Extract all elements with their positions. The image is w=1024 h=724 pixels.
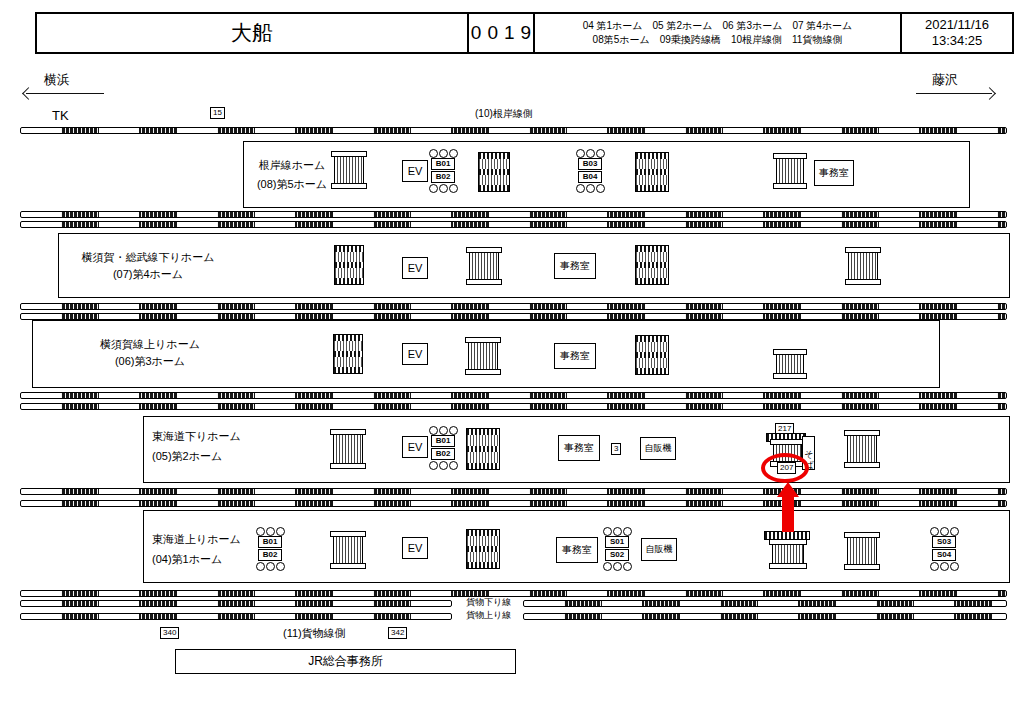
stairs-icon	[334, 156, 364, 184]
highlight-circle	[761, 453, 809, 483]
freight-up-track-left	[20, 613, 452, 620]
freight-side-label: (11)貨物線側	[283, 626, 346, 641]
platform-4-label: 横須賀・総武線下りホーム (07)第4ホーム	[78, 249, 218, 283]
track-line	[20, 403, 1007, 410]
direction-right-label: 藤沢	[932, 71, 958, 89]
direction-left-label: 横浜	[44, 71, 70, 89]
marker-15[interactable]: 15	[210, 107, 225, 119]
stairs-icon	[333, 536, 363, 564]
escalator-icon	[635, 152, 669, 192]
highlight-arrow-head-icon	[777, 482, 799, 497]
platform-3-label: 横須賀線上りホーム (06)第3ホーム	[86, 336, 214, 370]
platform-1-label: 東海道上りホーム (04)第1ホーム	[152, 529, 252, 569]
stairs-icon	[776, 158, 804, 184]
track-line	[20, 303, 1007, 310]
machine-dots-icon	[429, 426, 458, 434]
escalator-icon	[466, 529, 500, 569]
office-box: 事務室	[554, 343, 596, 369]
office-box: 事務室	[556, 537, 598, 563]
machine-dots-icon	[429, 184, 458, 192]
track-line	[20, 590, 1007, 597]
date-text: 2021/11/16	[925, 17, 989, 33]
screen-code: 0019	[467, 14, 533, 52]
machine-dots-icon	[603, 527, 632, 535]
negishi-side-label: (10)根岸線側	[475, 107, 533, 121]
escalator-icon	[635, 335, 669, 375]
machine-dots-icon	[930, 562, 959, 570]
direction-left-arrow-icon	[26, 93, 104, 94]
office-box: 事務室	[558, 435, 600, 461]
escalator-icon	[334, 245, 364, 285]
escalator-icon	[478, 152, 510, 192]
direction-right-arrow-icon	[916, 93, 992, 94]
stairs-icon	[469, 252, 499, 280]
track-line	[20, 127, 1007, 134]
vending-machine-box: 自販機	[641, 538, 677, 561]
freight-up-label: 貨物上り線	[466, 609, 511, 622]
legend-line-2: 08第5ホーム 09乗換跨線橋 10根岸線側 11貨物線側	[593, 33, 843, 47]
machine-dots-icon	[429, 149, 458, 157]
station-name: 大船	[37, 14, 467, 52]
elevator-box: EV	[402, 343, 428, 365]
stairs-icon	[847, 435, 877, 463]
escalator-icon	[333, 334, 363, 374]
stairs-icon	[468, 342, 498, 370]
machine-dots-icon	[930, 527, 959, 535]
freight-down-track-left	[20, 600, 452, 607]
highlight-arrow-shaft	[782, 496, 794, 532]
track-line	[20, 488, 1007, 495]
elevator-box: EV	[402, 537, 428, 559]
time-text: 13:34:25	[932, 33, 983, 49]
track-line	[20, 313, 1007, 320]
tk-label: TK	[52, 108, 69, 123]
signage-s01-s02[interactable]: S01 S02	[602, 527, 632, 570]
machine-dots-icon	[576, 184, 605, 192]
freight-down-track-right	[523, 600, 1007, 607]
elevator-box: EV	[402, 160, 428, 182]
platform-2-label: 東海道下りホーム (05)第2ホーム	[152, 426, 252, 466]
track-line	[20, 500, 1007, 507]
stairs-icon	[848, 252, 878, 280]
machine-dots-icon	[256, 562, 285, 570]
platform-5-label: 根岸線ホーム (08)第5ホーム	[246, 156, 338, 194]
stairs-icon	[847, 537, 877, 565]
office-box: 事務室	[554, 253, 596, 279]
signage-b01-b02[interactable]: B01 B02	[428, 149, 458, 192]
track-line	[20, 211, 1007, 218]
stairs-icon	[333, 434, 363, 464]
signage-b03-b04[interactable]: B03 B04	[575, 149, 605, 192]
legend-line-1: 04 第1ホーム 05 第2ホーム 06 第3ホーム 07 第4ホーム	[583, 19, 853, 33]
header-bar: 大船 0019 04 第1ホーム 05 第2ホーム 06 第3ホーム 07 第4…	[35, 12, 1014, 54]
station-diagram: 大船 0019 04 第1ホーム 05 第2ホーム 06 第3ホーム 07 第4…	[0, 0, 1024, 724]
machine-dots-icon	[576, 149, 605, 157]
track-line	[20, 392, 1007, 399]
signage-s03-s04[interactable]: S03 S04	[929, 527, 959, 570]
elevator-box: EV	[402, 436, 428, 458]
signage-b01-b02[interactable]: B01 B02	[428, 426, 458, 469]
escalator-icon	[635, 245, 669, 285]
marker-340[interactable]: 340	[160, 627, 179, 639]
escalator-icon	[466, 428, 500, 470]
platform-legend: 04 第1ホーム 05 第2ホーム 06 第3ホーム 07 第4ホーム 08第5…	[533, 14, 900, 52]
office-box: 事務室	[814, 160, 854, 186]
machine-dots-icon	[603, 562, 632, 570]
machine-dots-icon	[429, 461, 458, 469]
datetime: 2021/11/16 13:34:25	[900, 14, 1012, 52]
freight-down-label: 貨物下り線	[466, 596, 511, 609]
stairs-icon	[772, 544, 804, 564]
elevator-box: EV	[402, 257, 428, 279]
track-line	[20, 221, 1007, 228]
marker-3[interactable]: 3	[611, 443, 621, 455]
freight-up-track-right	[523, 613, 1007, 620]
marker-342[interactable]: 342	[388, 627, 407, 639]
jr-office-box: JR総合事務所	[175, 649, 516, 674]
vending-machine-box: 自販機	[640, 437, 676, 460]
machine-dots-icon	[256, 527, 285, 535]
stairs-icon	[776, 354, 804, 374]
signage-b01-b02[interactable]: B01 B02	[255, 527, 285, 570]
